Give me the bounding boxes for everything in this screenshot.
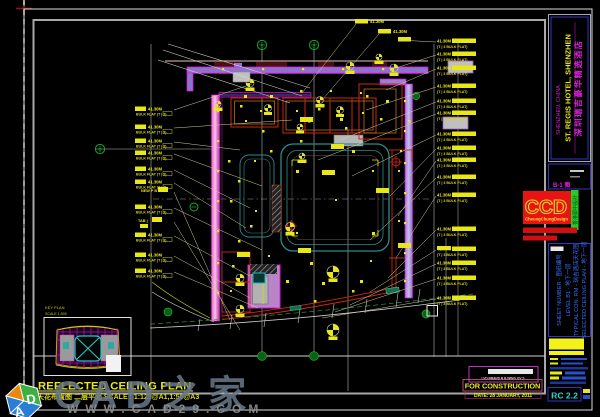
svg-text:香港鄭中設計: 香港鄭中設計 bbox=[572, 195, 579, 225]
svg-text:SELECTED CEILING PLAN - 地下一层: SELECTED CEILING PLAN - 地下一层 bbox=[580, 241, 588, 338]
svg-text:41.30M: 41.30M bbox=[370, 19, 384, 24]
svg-text:(T | 3 BULK FLAT): (T | 3 BULK FLAT) bbox=[437, 267, 468, 271]
svg-text:(T | 3 BULK FLAT): (T | 3 BULK FLAT) bbox=[437, 233, 468, 237]
svg-text:41.30M: 41.30M bbox=[437, 193, 451, 198]
svg-text:41.30M: 41.30M bbox=[148, 151, 162, 156]
svg-text:(T | 3 BULK FLAT): (T | 3 BULK FLAT) bbox=[437, 152, 468, 156]
svg-text:(T | 3 BULK FLAT): (T | 3 BULK FLAT) bbox=[437, 45, 468, 49]
svg-text:41.30M: 41.30M bbox=[437, 261, 451, 266]
svg-text:41.30M: 41.30M bbox=[437, 99, 451, 104]
svg-text:41.30M: 41.30M bbox=[437, 39, 451, 44]
svg-text:ST. REGIS HOTEL, SHENZHEN: ST. REGIS HOTEL, SHENZHEN bbox=[564, 34, 573, 142]
svg-text:BULK FLAT (T | 3): BULK FLAT (T | 3) bbox=[136, 211, 167, 215]
svg-text:(T | 3 BULK FLAT): (T | 3 BULK FLAT) bbox=[437, 105, 468, 109]
svg-text:BULK FLAT (T | 3): BULK FLAT (T | 3) bbox=[136, 145, 167, 149]
svg-text:41.30M: 41.30M bbox=[437, 276, 451, 281]
svg-text:(T | 3 BULK FLAT): (T | 3 BULK FLAT) bbox=[437, 302, 468, 306]
svg-text:(T | 3 BULK FLAT): (T | 3 BULK FLAT) bbox=[437, 72, 468, 76]
svg-text:RC 2.2: RC 2.2 bbox=[551, 391, 578, 401]
svg-text:41.30M: 41.30M bbox=[437, 227, 451, 232]
svg-text:SCALE 1:500: SCALE 1:500 bbox=[45, 312, 67, 316]
svg-text:SHENZHEN, CHINA: SHENZHEN, CHINA bbox=[556, 85, 562, 135]
svg-text:LEVEL B1 - 地下一层: LEVEL B1 - 地下一层 bbox=[564, 263, 572, 316]
svg-text:BULK FLAT (T | 3): BULK FLAT (T | 3) bbox=[136, 259, 167, 263]
svg-text:BULK FLAT (T | 3): BULK FLAT (T | 3) bbox=[136, 157, 167, 161]
svg-text:NEW P B: NEW P B bbox=[141, 189, 157, 193]
svg-text:41.30M: 41.30M bbox=[437, 84, 451, 89]
svg-text:(T | 3 BULK FLAT): (T | 3 BULK FLAT) bbox=[437, 138, 468, 142]
svg-text:41.30M: 41.30M bbox=[148, 107, 162, 112]
svg-text:(T | 3 BULK FLAT): (T | 3 BULK FLAT) bbox=[437, 282, 468, 286]
svg-text:41.30M: 41.30M bbox=[437, 296, 451, 301]
svg-text:(T | 3 BULK FLAT): (T | 3 BULK FLAT) bbox=[437, 253, 468, 257]
svg-text:BULK FLAT (T | 3): BULK FLAT (T | 3) bbox=[136, 275, 167, 279]
svg-text:41.30M: 41.30M bbox=[148, 125, 162, 130]
svg-text:B-1 图: B-1 图 bbox=[553, 181, 570, 189]
svg-text:CheungChungDesign: CheungChungDesign bbox=[525, 217, 568, 222]
svg-text:TAB |: TAB | bbox=[138, 219, 148, 223]
svg-text:BULK FLAT (T | 3): BULK FLAT (T | 3) bbox=[136, 239, 167, 243]
svg-text:41.30M: 41.30M bbox=[437, 111, 451, 116]
svg-text:41.30M: 41.30M bbox=[148, 253, 162, 258]
svg-text:CCD: CCD bbox=[525, 197, 567, 219]
svg-text:TYPICAL CON. RM - 瑞吉酒店天花图: TYPICAL CON. RM - 瑞吉酒店天花图 bbox=[572, 243, 580, 336]
svg-text:(T | 3 BULK FLAT): (T | 3 BULK FLAT) bbox=[437, 181, 468, 185]
svg-text:(T | 3 BULK FLAT): (T | 3 BULK FLAT) bbox=[437, 164, 468, 168]
svg-text:41.30M: 41.30M bbox=[393, 29, 407, 34]
svg-text:41.30M: 41.30M bbox=[437, 66, 451, 71]
svg-text:FOR CONSTRUCTION: FOR CONSTRUCTION bbox=[465, 382, 541, 391]
svg-text:DATE: 28 JANUARY, 2011: DATE: 28 JANUARY, 2011 bbox=[474, 393, 532, 399]
svg-text:41.30M: 41.30M bbox=[148, 167, 162, 172]
svg-text:41.30M: 41.30M bbox=[437, 132, 451, 137]
svg-text:BULK FLAT (T | 3): BULK FLAT (T | 3) bbox=[136, 113, 167, 117]
svg-text:41.30M: 41.30M bbox=[148, 180, 162, 185]
svg-text:41.30M: 41.30M bbox=[437, 158, 451, 163]
svg-text:BULK FLAT (T | 3): BULK FLAT (T | 3) bbox=[136, 173, 167, 177]
svg-text:41.30M: 41.30M bbox=[148, 139, 162, 144]
svg-text:WWW.CAD29.COM: WWW.CAD29.COM bbox=[67, 402, 265, 416]
svg-text:(T | 3 BULK FLAT): (T | 3 BULK FLAT) bbox=[437, 199, 468, 203]
svg-text:41.30M: 41.30M bbox=[437, 175, 451, 180]
svg-text:(T | 3 BULK FLAT): (T | 3 BULK FLAT) bbox=[437, 90, 468, 94]
svg-text:(T | 3 BULK FLAT): (T | 3 BULK FLAT) bbox=[437, 117, 468, 121]
svg-text:BULK FLAT (T | 3): BULK FLAT (T | 3) bbox=[136, 131, 167, 135]
svg-text:(T | 3 BULK FLAT): (T | 3 BULK FLAT) bbox=[437, 58, 468, 62]
svg-text:41.30M: 41.30M bbox=[148, 205, 162, 210]
svg-text:41.30M: 41.30M bbox=[148, 269, 162, 274]
svg-text:KEY PLAN: KEY PLAN bbox=[45, 305, 65, 310]
svg-text:41.30M: 41.30M bbox=[148, 233, 162, 238]
svg-text:41.30M: 41.30M bbox=[437, 146, 451, 151]
svg-text:深圳瑞吉豪华精选酒店: 深圳瑞吉豪华精选酒店 bbox=[573, 40, 583, 137]
svg-text:SHEET NUMBER - 图纸编号: SHEET NUMBER - 图纸编号 bbox=[555, 254, 563, 326]
svg-text:41.30M: 41.30M bbox=[437, 52, 451, 57]
